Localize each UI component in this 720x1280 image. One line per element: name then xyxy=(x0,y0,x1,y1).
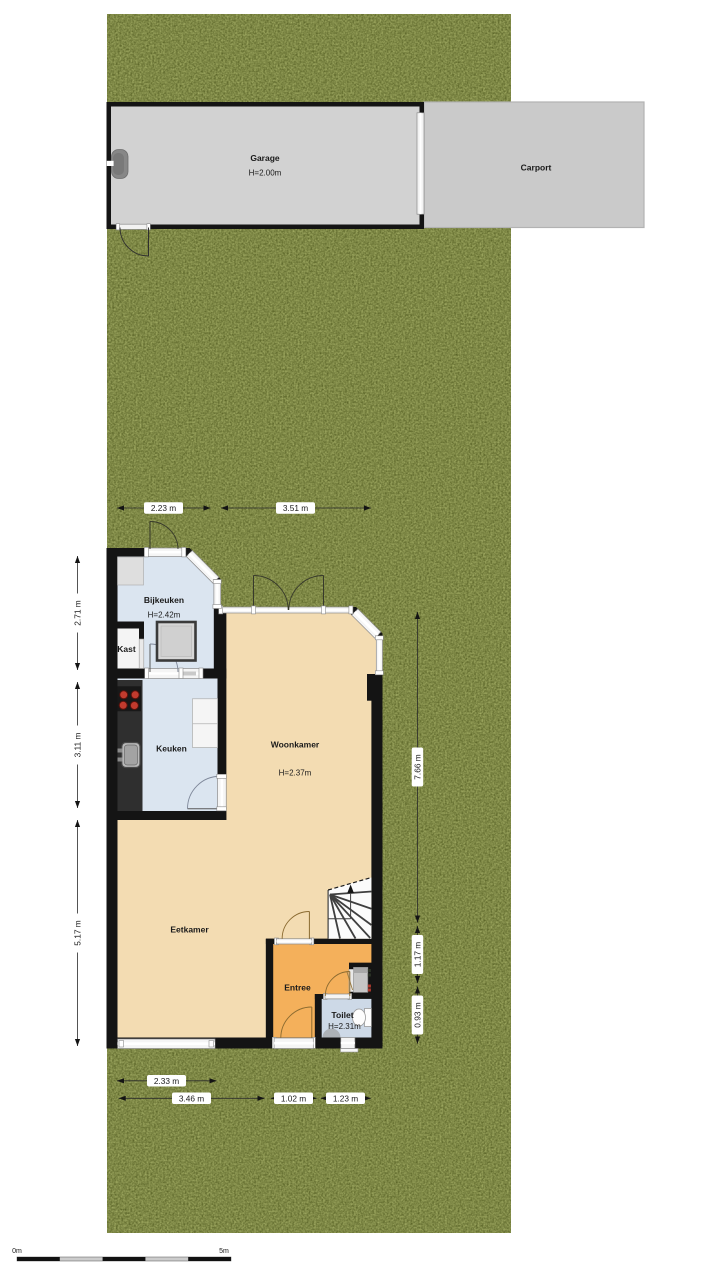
svg-text:Carport: Carport xyxy=(521,163,552,173)
svg-text:Entree: Entree xyxy=(284,983,311,993)
svg-text:Keuken: Keuken xyxy=(156,744,187,754)
svg-text:3.11 m: 3.11 m xyxy=(73,733,83,758)
svg-text:Garage: Garage xyxy=(250,153,280,163)
svg-text:H=2.42m: H=2.42m xyxy=(148,611,181,620)
svg-text:0.93 m: 0.93 m xyxy=(413,1002,423,1027)
svg-text:5m: 5m xyxy=(219,1248,229,1255)
svg-text:Bijkeuken: Bijkeuken xyxy=(144,595,184,605)
svg-text:H=2.31m: H=2.31m xyxy=(328,1022,361,1031)
svg-text:H=2.37m: H=2.37m xyxy=(279,769,312,778)
svg-text:1.17 m: 1.17 m xyxy=(413,942,423,967)
svg-text:0m: 0m xyxy=(12,1248,22,1255)
svg-text:Eetkamer: Eetkamer xyxy=(170,925,209,935)
svg-text:H=2.00m: H=2.00m xyxy=(249,169,282,178)
svg-text:Woonkamer: Woonkamer xyxy=(271,740,320,750)
svg-text:7.66 m: 7.66 m xyxy=(413,754,423,779)
svg-text:Kast: Kast xyxy=(117,644,136,654)
svg-text:Toilet: Toilet xyxy=(331,1010,353,1020)
svg-text:2.71 m: 2.71 m xyxy=(73,600,83,625)
svg-text:5.17 m: 5.17 m xyxy=(73,920,83,945)
svg-text:2.23 m: 2.23 m xyxy=(151,503,176,513)
svg-text:1.23 m: 1.23 m xyxy=(333,1093,358,1103)
svg-text:3.46 m: 3.46 m xyxy=(179,1093,204,1103)
svg-text:1.02 m: 1.02 m xyxy=(281,1093,306,1103)
svg-text:2.33 m: 2.33 m xyxy=(154,1076,179,1086)
svg-text:3.51 m: 3.51 m xyxy=(283,503,308,513)
